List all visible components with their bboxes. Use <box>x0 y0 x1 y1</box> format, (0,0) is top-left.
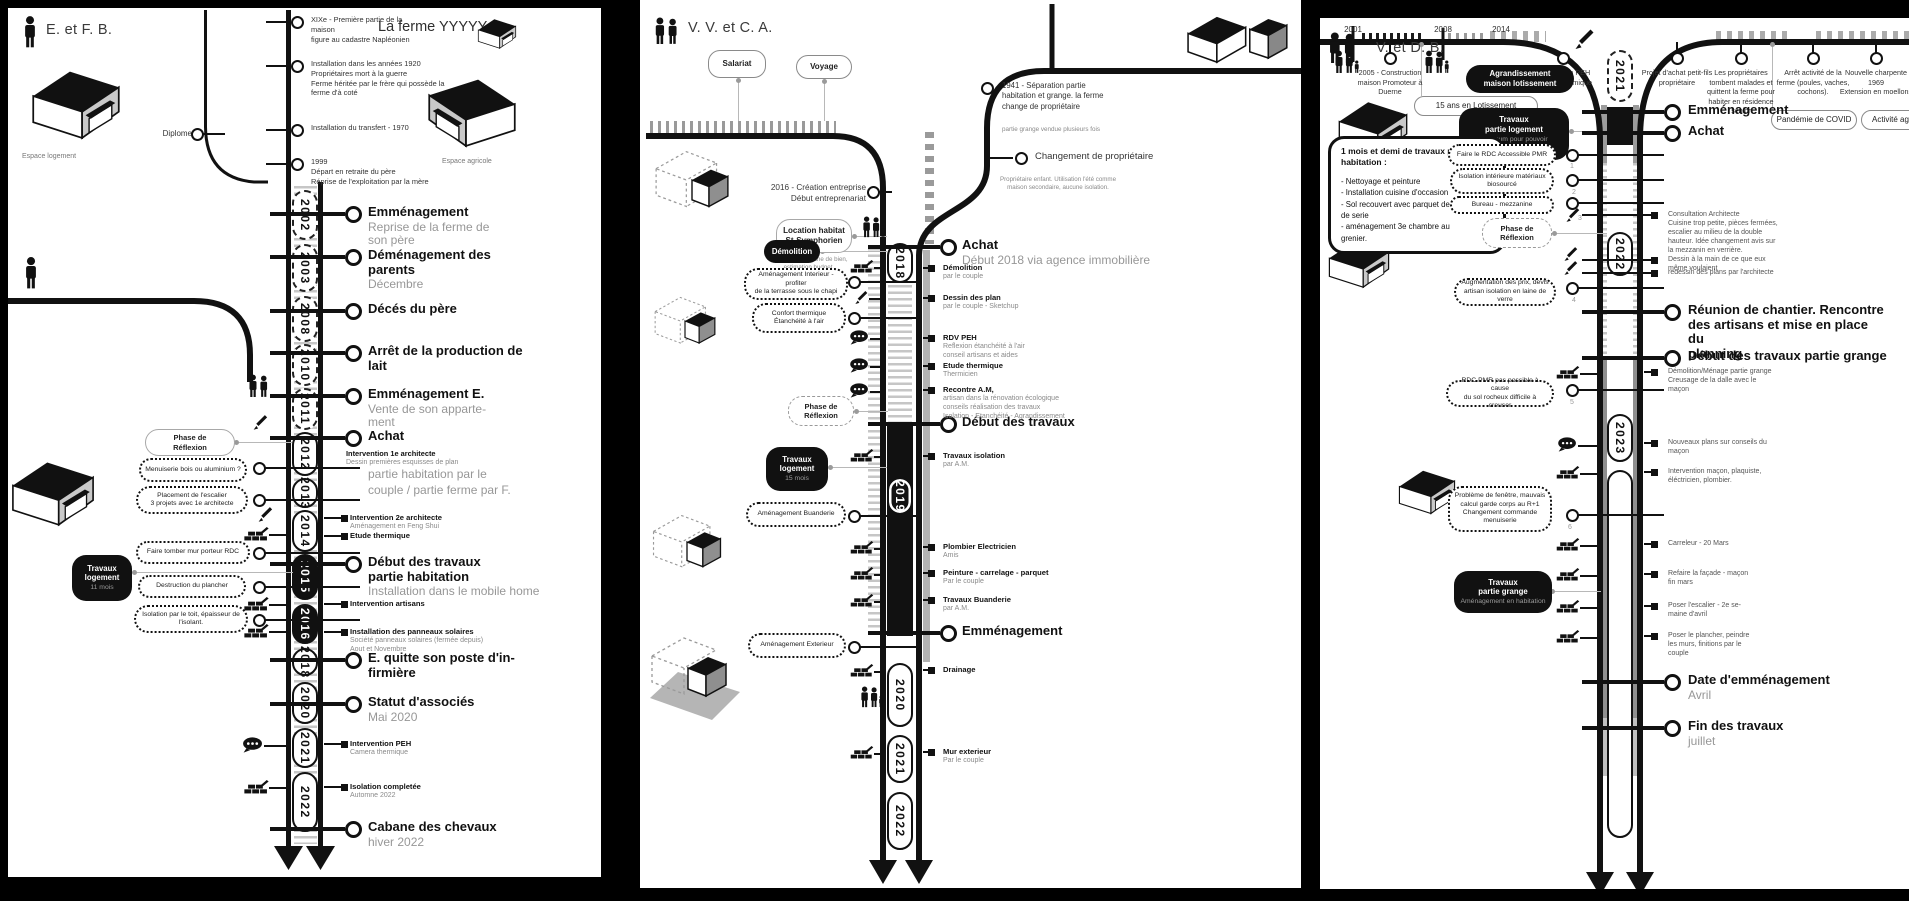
event-subtitle: Aménagement en Feng Shui <box>350 522 500 531</box>
timeline-panel-e-fb: E. et F. B. 2002200320082010201120122013… <box>8 8 601 877</box>
event-subtitle: Refaire la façade - maçon fin mars <box>1668 569 1788 587</box>
hatch-band <box>650 121 836 134</box>
event-tick <box>324 603 341 605</box>
event-subtitle: Démolition/Ménage partie grange Creusage… <box>1668 367 1788 394</box>
bubble-label: Travaux partie grange <box>1478 578 1527 597</box>
speech-icon <box>849 383 870 398</box>
event-title: Emménagement <box>1688 103 1888 118</box>
panel-title: V. et D. B. <box>1376 40 1444 56</box>
event-node <box>1807 52 1820 65</box>
event-subtitle: Décembre <box>368 278 543 292</box>
event-node <box>345 696 362 713</box>
icon-tick <box>1580 575 1597 577</box>
bubble-label: Isolation intérieure matériaux biosourcé <box>1458 173 1545 190</box>
note-bubble: Problème de fenêtre, mauvais calcul gard… <box>1448 486 1552 532</box>
event-node <box>341 533 348 540</box>
event-title: Emménagement <box>962 624 1162 639</box>
brick-icon <box>850 664 874 677</box>
year-label: 2022 <box>894 805 906 838</box>
event-title: Fin des travaux <box>1688 719 1888 734</box>
pencil-icon <box>853 290 869 306</box>
timeline-event: Travaux Buanderiepar A.M. <box>943 595 1093 613</box>
event-achat: Achat <box>368 429 543 444</box>
event-subtitle: Carreleur - 20 Mars <box>1668 539 1788 548</box>
brick-icon <box>850 567 874 580</box>
timeline-event: Etude thermique <box>350 531 500 540</box>
bubble-label: Travaux partie logement <box>1485 115 1543 134</box>
event-tick <box>270 436 345 439</box>
timeline-node <box>253 581 266 594</box>
house-icon <box>8 452 98 532</box>
event-node <box>345 249 362 266</box>
bubble-label: RDC PMR pas possible à cause du sol roch… <box>1452 377 1548 411</box>
note-bubble: Salariat <box>708 50 766 78</box>
event-tick <box>868 631 940 634</box>
event-tick <box>270 394 345 397</box>
timeline-panel-v-db: V. et D. B. 2021202220232001200820142005… <box>1320 18 1909 889</box>
event-node <box>1651 571 1658 578</box>
event-title: Recontre A.M, <box>943 385 1103 394</box>
event-node <box>1651 633 1658 640</box>
event-title: Déménagement des parents <box>368 248 543 277</box>
bubble-label: Destruction du plancher <box>156 582 228 590</box>
brick-icon <box>850 449 874 462</box>
event-title: Démolition <box>943 263 1093 272</box>
timeline-node <box>253 494 266 507</box>
timeline-event: Peinture - carrelage - parquetPar le cou… <box>943 568 1093 586</box>
year-label: 2023 <box>1614 422 1626 455</box>
annotation-text: partie habitation par le couple / partie… <box>368 467 511 498</box>
sketch-icon <box>652 290 718 352</box>
annotation-text: Espace logement <box>22 152 76 161</box>
event-subtitle: par le couple <box>943 272 1093 281</box>
timeline-node <box>848 312 861 325</box>
step-number: 3 <box>1578 214 1582 223</box>
event-title: Début des travaux partie habitation <box>368 555 573 584</box>
icon-tick <box>1578 445 1597 447</box>
note-bubble: RDC PMR pas possible à cause du sol roch… <box>1446 380 1554 407</box>
timeline-node <box>848 641 861 654</box>
year-label: 2008 <box>299 303 311 336</box>
timeline-node <box>253 547 266 560</box>
timeline-event: Etude thermiqueThermicien <box>943 361 1093 379</box>
year-capsule: 2022 <box>887 792 913 850</box>
event-node <box>928 335 935 342</box>
house-icon <box>476 10 518 56</box>
note-bubble: Aménagement Buanderie <box>746 502 846 527</box>
year-label: 2021 <box>894 743 906 776</box>
year-label: 2022 <box>1614 238 1626 271</box>
brick-icon <box>244 780 269 794</box>
event-node <box>1671 52 1684 65</box>
year-capsule: 2014 <box>292 510 318 552</box>
event-node <box>928 363 935 370</box>
year-capsule: 2015 <box>292 554 318 600</box>
event-tick <box>270 351 345 354</box>
timeline-node <box>1566 197 1579 210</box>
year-capsule: 2023 <box>1607 414 1633 462</box>
event-subtitle: Intervention maçon, plaquiste, éléctrici… <box>1668 467 1788 485</box>
event-node <box>1651 440 1658 447</box>
event-node <box>940 239 957 256</box>
event-node <box>1015 152 1028 165</box>
event-title: Isolation completée <box>350 782 500 791</box>
event-node <box>341 601 348 608</box>
timeline-event: Consultation Architecte Cuisine trop pet… <box>1668 210 1803 255</box>
note-bubble: Faire tomber mur porteur RDC <box>136 541 250 564</box>
connector-line <box>824 81 825 121</box>
bubble-label: Augmentation des prix, devis artisan iso… <box>1460 279 1550 304</box>
event-node <box>928 597 935 604</box>
event-tick <box>868 245 940 248</box>
bubble-label: Phase de Réflexion <box>1500 224 1534 243</box>
timeline-tick <box>1578 389 1664 392</box>
connector-line <box>1552 591 1601 592</box>
event-subtitle: par le couple - Sketchup <box>943 302 1093 311</box>
event-tick <box>270 309 345 312</box>
connector-line <box>236 442 292 443</box>
event-subtitle: Poser le plancher, peindre les murs, fin… <box>1668 631 1788 658</box>
bubble-label: Aménagement Exterieur <box>760 641 833 649</box>
event-node <box>1651 369 1658 376</box>
shade-band <box>887 424 913 636</box>
event-node <box>1664 125 1681 142</box>
timeline-event: Recontre A.M,artisan dans la rénovation … <box>943 385 1103 421</box>
event-node <box>345 430 362 447</box>
tworoofs-icon <box>1186 10 1294 68</box>
year-capsule: 2010 <box>292 344 318 386</box>
note-bubble: Menuiserie bois ou aluminium ? <box>139 458 247 482</box>
icon-tick <box>1580 373 1597 375</box>
brick-icon <box>850 541 874 554</box>
event-tick <box>324 517 341 519</box>
event-node <box>1664 304 1681 321</box>
bubble-label: Aménagement Interieur - profiter de la t… <box>750 271 842 296</box>
note-bubble: Agrandissement maison lotissement <box>1466 65 1574 93</box>
sketch-icon <box>650 510 724 574</box>
annotation-text: partie grange vendue plusieurs fois <box>1002 126 1100 134</box>
event-tick <box>1582 259 1652 261</box>
couple-icon <box>248 374 270 398</box>
event-node <box>1664 104 1681 121</box>
event-statut-associes: Statut d'associésMai 2020 <box>368 695 543 724</box>
bubble-label: Isolation par le toit, épaisseur de l'is… <box>142 611 240 628</box>
note-bubble: Voyage <box>796 55 852 79</box>
event-fin-travaux: Fin des travauxjuillet <box>1688 719 1888 748</box>
bubble-label: Aménagement Buanderie <box>757 510 834 518</box>
timeline-tick <box>265 586 360 589</box>
note-bubble: Placement de l'escalier 3 projets avec 1… <box>136 486 248 514</box>
hatch-band <box>888 285 912 424</box>
note-bubble: Travaux partie grangeAménagement en habi… <box>1454 571 1552 613</box>
bubble-sublabel: 11 mois <box>90 584 113 592</box>
event-subtitle: juillet <box>1688 735 1888 749</box>
event-tick <box>270 702 345 705</box>
year-capsule: 2013 <box>292 478 318 508</box>
event-node <box>928 544 935 551</box>
timeline-tick <box>203 133 225 136</box>
event-title: Arrêt de la production de lait <box>368 344 543 373</box>
timeline-event: Nouveaux plans sur conseils du maçon <box>1668 438 1788 456</box>
event-debut-travaux-grange: Début des travaux partie grange <box>1688 349 1903 364</box>
hatch-band <box>1816 31 1909 42</box>
icon-tick <box>1580 473 1597 475</box>
bubble-sublabel: - Nettoyage et peinture - Installation c… <box>1341 176 1460 244</box>
event-subtitle: par A.M. <box>943 604 1093 613</box>
bubble-label: Faire le RDC Accessible PMR <box>1457 151 1547 159</box>
timeline-tick <box>860 281 916 284</box>
event-tick <box>270 562 345 565</box>
event-text: Installation du transfert - 1970 <box>311 123 486 133</box>
timeline-event: 2005 - Construction maison Promoteur à D… <box>1342 68 1438 97</box>
event-title: Plombier Electricien <box>943 542 1093 551</box>
pencil-icon <box>1562 260 1579 277</box>
timeline-event: Intervention 2e architecteAménagement en… <box>350 513 500 531</box>
icon-tick <box>870 366 880 368</box>
event-node <box>345 206 362 223</box>
timeline-tick <box>265 467 360 470</box>
event-title: Emménagement <box>368 205 543 220</box>
event-node <box>1651 257 1658 264</box>
note-bubble: Travaux logement15 mois <box>766 447 828 491</box>
icon-tick <box>1580 607 1597 609</box>
icon-tick <box>1580 637 1597 639</box>
step-number: 6 <box>1568 523 1572 532</box>
event-title: Intervention PEH <box>350 739 500 748</box>
event-emmenagement-e: Emménagement E.Vente de son apparte- men… <box>368 387 543 430</box>
year-label: 2014 <box>299 515 311 548</box>
timeline-node <box>848 510 861 523</box>
icon-tick <box>874 601 880 603</box>
event-node <box>928 295 935 302</box>
house-icon <box>28 58 124 148</box>
timeline-event: Drainage <box>943 665 1093 674</box>
connector-line <box>134 572 293 573</box>
event-subtitle: Thermicien <box>943 370 1093 379</box>
couple-icon <box>1328 30 1358 66</box>
timeline-tick <box>1578 179 1664 182</box>
note-bubble: Travaux logement11 mois <box>72 555 132 601</box>
annotation-text: Dessin premières esquisses de plan <box>346 458 458 467</box>
event-node <box>1651 541 1658 548</box>
year-label: 2018 <box>299 646 311 679</box>
timeline-event: Installation dans les années 1920 Propri… <box>311 59 486 98</box>
note-bubble: Augmentation des prix, devis artisan iso… <box>1454 278 1556 306</box>
year-label: 2019 <box>894 480 906 513</box>
note-bubble: Destruction du plancher <box>138 575 246 598</box>
event-tick <box>1582 726 1664 729</box>
speech-icon <box>849 330 870 345</box>
event-tick <box>270 658 345 661</box>
icon-tick <box>269 787 286 789</box>
event-node <box>341 741 348 748</box>
year-label: 2020 <box>894 679 906 712</box>
connector-line <box>830 467 887 468</box>
event-node <box>345 303 362 320</box>
timeline-event: RDV PEHReflexion étanchéité à l'air cons… <box>943 333 1093 360</box>
event-title: Installation des panneaux solaires <box>350 627 515 636</box>
bubble-label: Menuiserie bois ou aluminium ? <box>145 466 241 474</box>
icon-tick <box>269 534 286 536</box>
event-node <box>345 821 362 838</box>
pencil-icon <box>256 506 274 524</box>
timeline-event: XIXe - Première partie de la maison figu… <box>311 15 466 44</box>
event-text: Nouvelle charpente 1969 Extension en moe… <box>1828 68 1909 97</box>
year-label: 2011 <box>299 393 311 425</box>
year-label: 2022 <box>299 786 311 819</box>
note-bubble: Phase de Réflexion <box>145 429 235 456</box>
brick-icon <box>1556 466 1580 479</box>
icon-tick <box>874 671 880 673</box>
year-capsule: 2016 <box>292 604 318 644</box>
event-quitte-poste-infirmiere: E. quitte son poste d'in- firmière <box>368 651 543 680</box>
event-text: 1941 - Séparation partie habitation et g… <box>1002 81 1142 112</box>
timeline-event: Dessin des planpar le couple - Sketchup <box>943 293 1093 311</box>
timeline-node <box>191 128 204 141</box>
event-demenagement-parents: Déménagement des parentsDécembre <box>368 248 543 292</box>
icon-tick <box>874 548 880 550</box>
timeline-event: Plombier ElectricienAmis <box>943 542 1093 560</box>
event-title: Etude thermique <box>943 361 1093 370</box>
event-title: Achat <box>368 429 543 444</box>
event-node <box>981 82 994 95</box>
pencil-icon <box>1572 28 1596 52</box>
event-debut-travaux-habitation: Début des travaux partie habitationInsta… <box>368 555 573 599</box>
bubble-label: Salariat <box>723 59 752 69</box>
event-node <box>291 158 304 171</box>
bubble-label: Démolition <box>772 247 812 257</box>
hatch-band <box>1716 31 1790 42</box>
person-icon <box>23 16 37 48</box>
timeline-event: Changement de propriétaire <box>1035 151 1195 164</box>
shade-band <box>1633 356 1639 718</box>
event-node <box>341 515 348 522</box>
event-text: 2005 - Construction maison Promoteur à D… <box>1342 68 1438 97</box>
event-node <box>1557 52 1570 65</box>
timeline-node <box>1566 384 1579 397</box>
connector-line <box>856 411 888 412</box>
timeline-event: Démolition/Ménage partie grange Creusage… <box>1668 367 1788 394</box>
year-capsule: 2019 <box>887 477 913 515</box>
event-subtitle: Reflexion étanchéité à l'air conseil art… <box>943 342 1093 360</box>
event-subtitle: Reprise de la ferme de son père <box>368 221 543 249</box>
timeline-event: Poser l'escalier - 2e se- maine d'avril <box>1668 601 1788 619</box>
speech-icon <box>849 358 870 373</box>
event-node <box>928 265 935 272</box>
timeline-node <box>1566 174 1579 187</box>
annotation-text: 2016 - Création entreprise Début entrepr… <box>732 183 866 204</box>
year-capsule: 2022 <box>1607 232 1633 276</box>
event-tick <box>266 163 291 166</box>
sketch-icon <box>652 146 732 214</box>
event-text: 1999 Départ en retraite du père Réprise … <box>311 157 486 186</box>
event-title: Statut d'associés <box>368 695 543 710</box>
annotation-text: 2014 <box>1486 25 1516 35</box>
event-tick <box>1582 131 1664 134</box>
event-arret-production-lait: Arrêt de la production de lait <box>368 344 543 373</box>
event-title: Mur exterieur <box>943 747 1093 756</box>
event-node <box>345 345 362 362</box>
event-tick <box>1582 356 1664 359</box>
event-title: RDV PEH <box>943 333 1093 342</box>
event-title: Intervention artisans <box>350 599 500 608</box>
timeline-tick <box>860 515 916 518</box>
brick-icon <box>1556 568 1580 581</box>
timeline-node <box>867 186 880 199</box>
event-cabane-chevaux: Cabane des chevauxhiver 2022 <box>368 820 543 849</box>
event-title: Drainage <box>943 665 1093 674</box>
step-number: 2 <box>1572 188 1576 197</box>
event-emmenagement: Emménagement <box>962 624 1162 639</box>
event-node <box>1651 469 1658 476</box>
timeline-tick <box>1578 202 1664 205</box>
brick-icon <box>244 597 269 611</box>
event-tick <box>990 157 1013 160</box>
bubble-label: Placement de l'escalier 3 projets avec 1… <box>150 492 233 509</box>
event-title: Travaux isolation <box>943 451 1093 460</box>
bubble-label: Phase de Réflexion <box>804 402 838 421</box>
timeline-tick <box>879 191 892 194</box>
event-node <box>928 453 935 460</box>
event-deces-pere: Décés du père <box>368 302 543 317</box>
person-icon <box>24 256 38 290</box>
year-capsule: 2021 <box>887 735 913 783</box>
speech-icon <box>242 737 264 753</box>
event-title: Achat <box>1688 124 1888 139</box>
event-title: Début des travaux partie grange <box>1688 349 1903 364</box>
couple-icon <box>654 16 680 46</box>
event-node <box>345 388 362 405</box>
annotation-text: Diplome <box>144 129 192 139</box>
event-subtitle: Mai 2020 <box>368 711 543 725</box>
icon-tick <box>269 631 286 633</box>
family-icon <box>862 214 886 240</box>
timeline-event: Carreleur - 20 Mars <box>1668 539 1788 548</box>
timeline-node <box>848 276 861 289</box>
annotation-text: Propriétaire enfant. Utilisation l'été c… <box>988 176 1128 192</box>
year-capsule <box>1607 470 1633 838</box>
year-label: 2021 <box>1614 60 1626 93</box>
timeline-event: 1941 - Séparation partie habitation et g… <box>1002 81 1142 112</box>
note-bubble: Faire le RDC Accessible PMR <box>1448 144 1556 166</box>
year-capsule: 2021 <box>292 728 318 768</box>
timeline-event: Nouvelle charpente 1969 Extension en moe… <box>1828 68 1909 97</box>
timeline-tick <box>265 619 360 622</box>
sketchg-icon <box>648 634 740 720</box>
brick-icon <box>850 594 874 607</box>
brick-icon <box>1556 538 1580 551</box>
event-node <box>345 652 362 669</box>
icon-tick <box>870 391 880 393</box>
icon-tick <box>874 574 880 576</box>
event-node <box>1651 270 1658 277</box>
bubble-label: Phase de Réflexion <box>173 433 207 452</box>
event-tick <box>270 827 345 830</box>
year-label: 2012 <box>299 438 311 471</box>
timeline-event: Poser le plancher, peindre les murs, fin… <box>1668 631 1788 658</box>
event-node <box>1664 350 1681 367</box>
event-node <box>341 629 348 636</box>
note-bubble: Phase de Réflexion <box>788 396 854 426</box>
brick-icon <box>244 527 269 541</box>
icon-tick <box>269 604 286 606</box>
bubble-sublabel: Aménagement en habitation <box>1460 598 1545 606</box>
event-node <box>345 556 362 573</box>
pencil-icon <box>251 414 269 432</box>
note-bubble: Aménagement Exterieur <box>748 633 846 658</box>
event-node <box>940 625 957 642</box>
event-node <box>1664 674 1681 691</box>
